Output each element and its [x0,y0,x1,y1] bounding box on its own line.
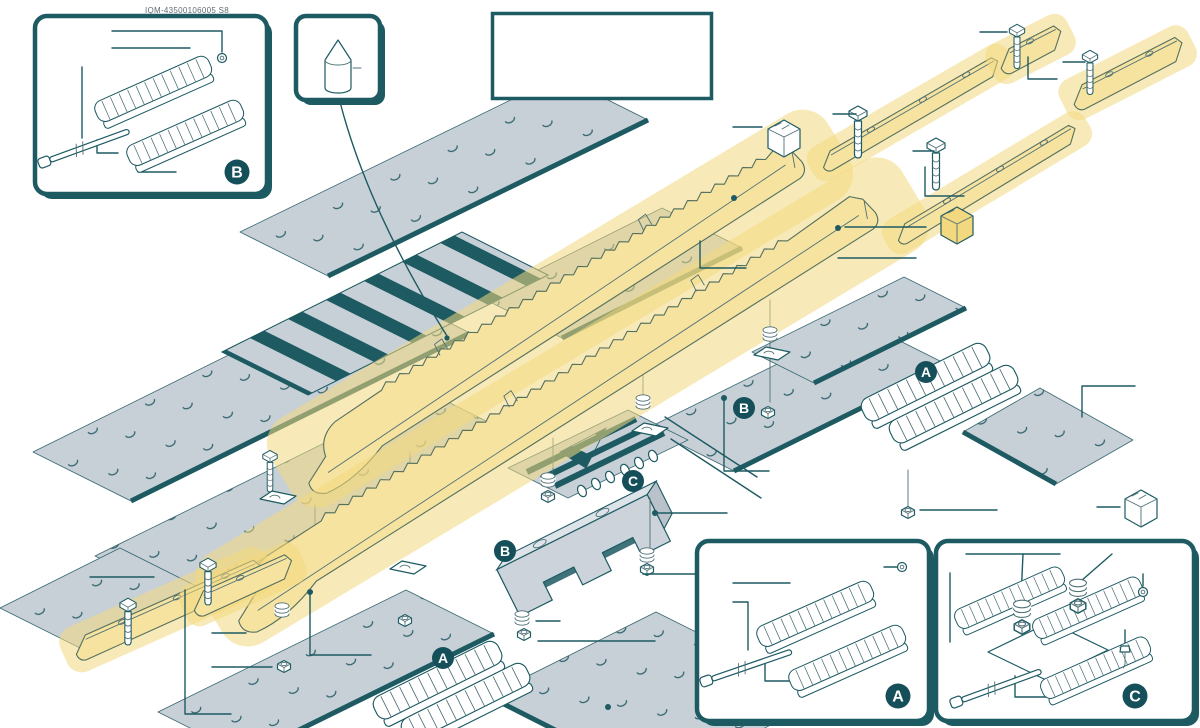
nut-icon [1070,599,1086,613]
part-badge-c: C [622,470,644,492]
end-block [980,9,1080,89]
title-block [493,14,712,99]
svg-text:A: A [438,650,448,666]
svg-text:B: B [739,400,749,416]
nut-icon [902,507,915,519]
washer-icon [218,54,227,63]
detail-inset-c: C [936,541,1199,726]
nut-icon [1014,620,1030,634]
inset-badge-a: A [886,684,911,709]
washer-icon [898,563,907,572]
detail-inset-a: A [697,541,934,726]
detail-inset-b: B [35,16,272,199]
detail-inset-plug [296,16,385,105]
part-badge-a: A [915,361,937,383]
bolt-icon [927,138,945,190]
nut-icon [762,407,775,419]
nut-icon [518,629,531,641]
part-badge-b: B [733,397,755,419]
nut-icon [399,615,412,627]
diagram-canvas: A A B B C B [0,0,1200,728]
inset-badge-c: C [1123,684,1148,709]
molded-bracket [493,481,683,616]
exploded-parts-diagram: A A B B C B [0,0,1200,728]
part-badge-a: A [432,647,454,669]
svg-text:B: B [500,543,510,559]
svg-text:A: A [892,689,904,706]
svg-text:C: C [628,473,638,489]
rail-clip-icon [390,561,426,574]
nut-icon [278,661,291,673]
doc-code: IQM-43500106005 S8 [145,6,229,15]
washer-icon [1139,588,1148,597]
end-block [1053,20,1200,125]
nut-icon [542,491,555,503]
cube-icon [1125,490,1157,527]
inset-badge-b: B [225,160,250,185]
svg-text:A: A [921,364,931,380]
part-badge-b: B [494,540,516,562]
svg-text:B: B [231,165,243,182]
svg-text:C: C [1129,689,1141,706]
